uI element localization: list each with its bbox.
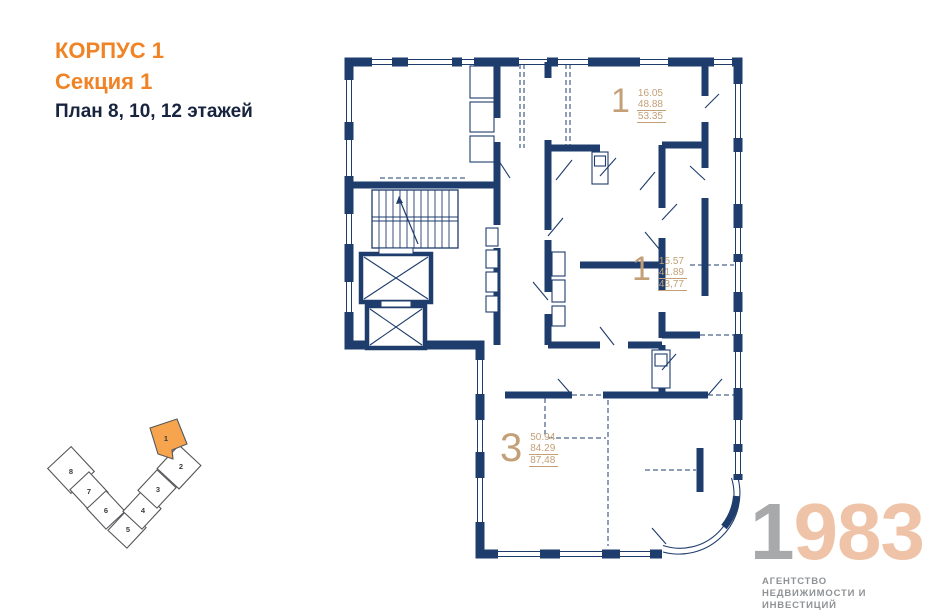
section-key-map: 1 2 3 4 5 6 7 8 [48, 419, 201, 548]
section-number: 8 [69, 467, 73, 476]
section-title: Секция 1 [55, 71, 253, 93]
floors-subtitle: План 8, 10, 12 этажей [55, 102, 253, 121]
stairs-icon [372, 190, 458, 248]
area-main: 41.89 [658, 267, 687, 279]
apartment-rooms: 1 [632, 256, 651, 284]
logo-year-rest: 983 [794, 487, 924, 576]
apartment-label: 1 16.05 48.88 53.35 [611, 88, 666, 123]
header: КОРПУС 1 Секция 1 План 8, 10, 12 этажей [55, 40, 253, 121]
agency-logo: 1983 АГЕНТСТВО НЕДВИЖИМОСТИ И ИНВЕСТИЦИЙ [750, 492, 941, 612]
section-number: 7 [87, 487, 91, 496]
apartment-label: 3 50.94 84.29 87,48 [500, 432, 558, 467]
section-number: 5 [126, 525, 130, 534]
area-living: 16.05 [637, 88, 666, 99]
area-main: 48.88 [637, 99, 666, 111]
elevator-icon [361, 248, 431, 302]
logo-year: 1983 [750, 492, 941, 572]
logo-year-first: 1 [750, 487, 794, 576]
logo-tagline-line2: НЕДВИЖИМОСТИ И ИНВЕСТИЦИЙ [762, 588, 941, 612]
windows-bottom [498, 548, 650, 560]
area-total: 87,48 [529, 455, 558, 467]
building-title: КОРПУС 1 [55, 40, 253, 62]
apartment-rooms: 3 [500, 432, 522, 465]
apartment-label: 1 15.57 41.89 43,77 [632, 256, 687, 291]
area-main: 84.29 [529, 443, 558, 455]
area-total: 43,77 [658, 279, 687, 291]
section-number: 6 [104, 506, 108, 515]
area-living: 15.57 [658, 256, 687, 267]
logo-tagline: АГЕНТСТВО НЕДВИЖИМОСТИ И ИНВЕСТИЦИЙ [762, 576, 941, 612]
area-living: 50.94 [529, 432, 558, 443]
windows-lower-left [474, 360, 486, 522]
area-total: 53.35 [637, 111, 666, 123]
logo-tagline-line1: АГЕНТСТВО [762, 576, 941, 588]
section-number: 3 [156, 485, 160, 494]
section-number: 1 [164, 434, 168, 443]
apartment-rooms: 1 [611, 88, 630, 116]
section-number: 2 [179, 462, 183, 471]
elevator-icon [367, 301, 425, 348]
